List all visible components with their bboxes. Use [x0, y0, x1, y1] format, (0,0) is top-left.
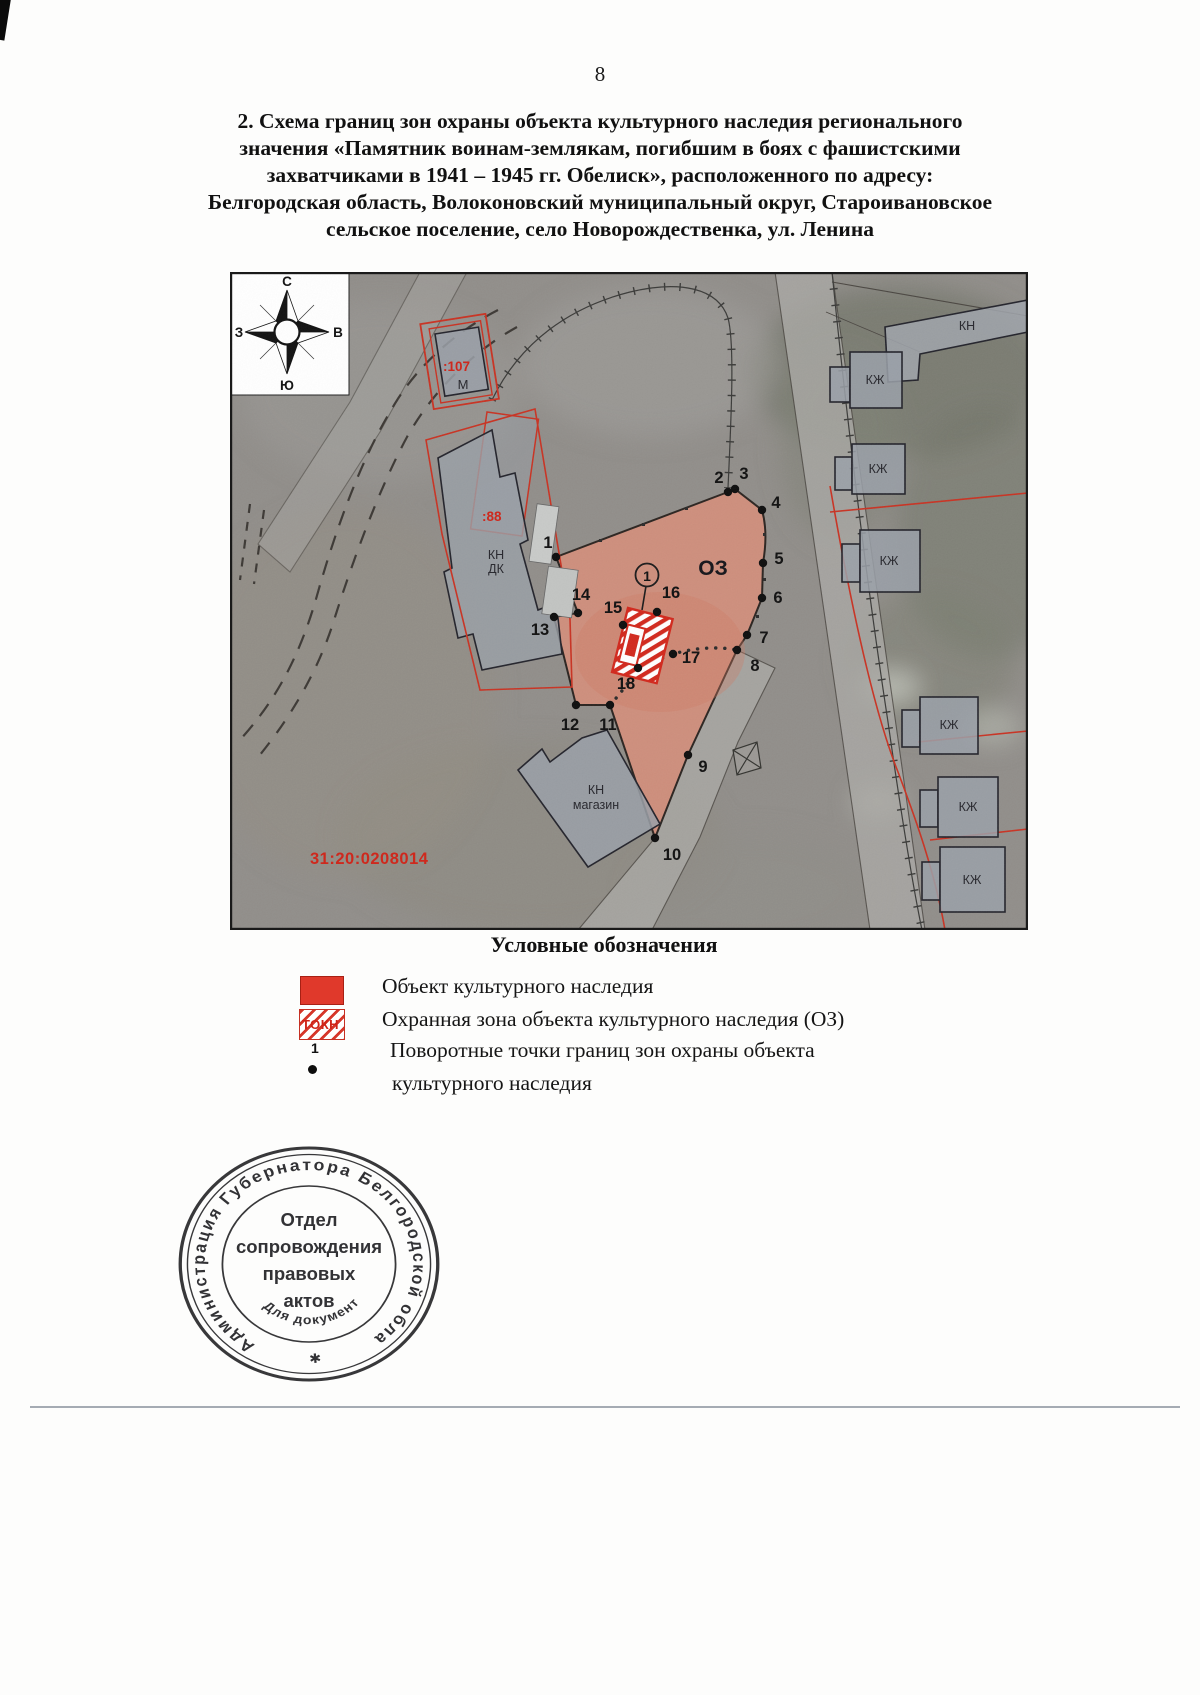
site-plan-map: 1 1 2 3 4 5 6 7 8 9 10 11 12 13 14 15 16… [230, 272, 1028, 930]
page-number: 8 [0, 62, 1200, 87]
document-title: 2. Схема границ зон охраны объекта культ… [75, 108, 1125, 243]
legend-swatch-protection-zone: ТОКН [299, 1009, 345, 1040]
legend-turning-point-number: 1 [311, 1040, 319, 1056]
legend-swatch-tokn-text: ТОКН [302, 1017, 339, 1032]
scan-edge-artifact [0, 0, 12, 41]
legend-label-turning-points-2: культурного наследия [392, 1071, 592, 1096]
legend-label-heritage-object: Объект культурного наследия [382, 974, 653, 999]
svg-text:актов: актов [283, 1290, 334, 1311]
stamp-center-text: Отдел сопровождения правовых актов [236, 1209, 382, 1311]
svg-text:правовых: правовых [263, 1263, 356, 1284]
footer-divider [30, 1406, 1180, 1408]
legend-swatch-heritage-object [300, 976, 344, 1005]
legend-turning-point-dot-icon [308, 1065, 317, 1074]
legend-label-protection-zone: Охранная зона объекта культурного наслед… [382, 1007, 844, 1032]
svg-text:сопровождения: сопровождения [236, 1236, 382, 1257]
stamp-star-icon: ✱ [309, 1351, 322, 1366]
scan-noise [230, 272, 1028, 930]
title-line: значения «Памятник воинам-землякам, поги… [75, 135, 1125, 162]
title-line: Белгородская область, Волоконовский муни… [75, 189, 1125, 216]
title-line: сельское поселение, село Новорождественк… [75, 216, 1125, 243]
legend-label-turning-points-1: Поворотные точки границ зон охраны объек… [390, 1038, 815, 1063]
title-line: захватчиками в 1941 – 1945 гг. Обелиск»,… [75, 162, 1125, 189]
official-stamp: Администрация Губернатора Белгородской о… [163, 1136, 455, 1392]
svg-text:Отдел: Отдел [281, 1209, 338, 1230]
title-line: 2. Схема границ зон охраны объекта культ… [75, 108, 1125, 135]
legend-title: Условные обозначения [0, 932, 1200, 958]
